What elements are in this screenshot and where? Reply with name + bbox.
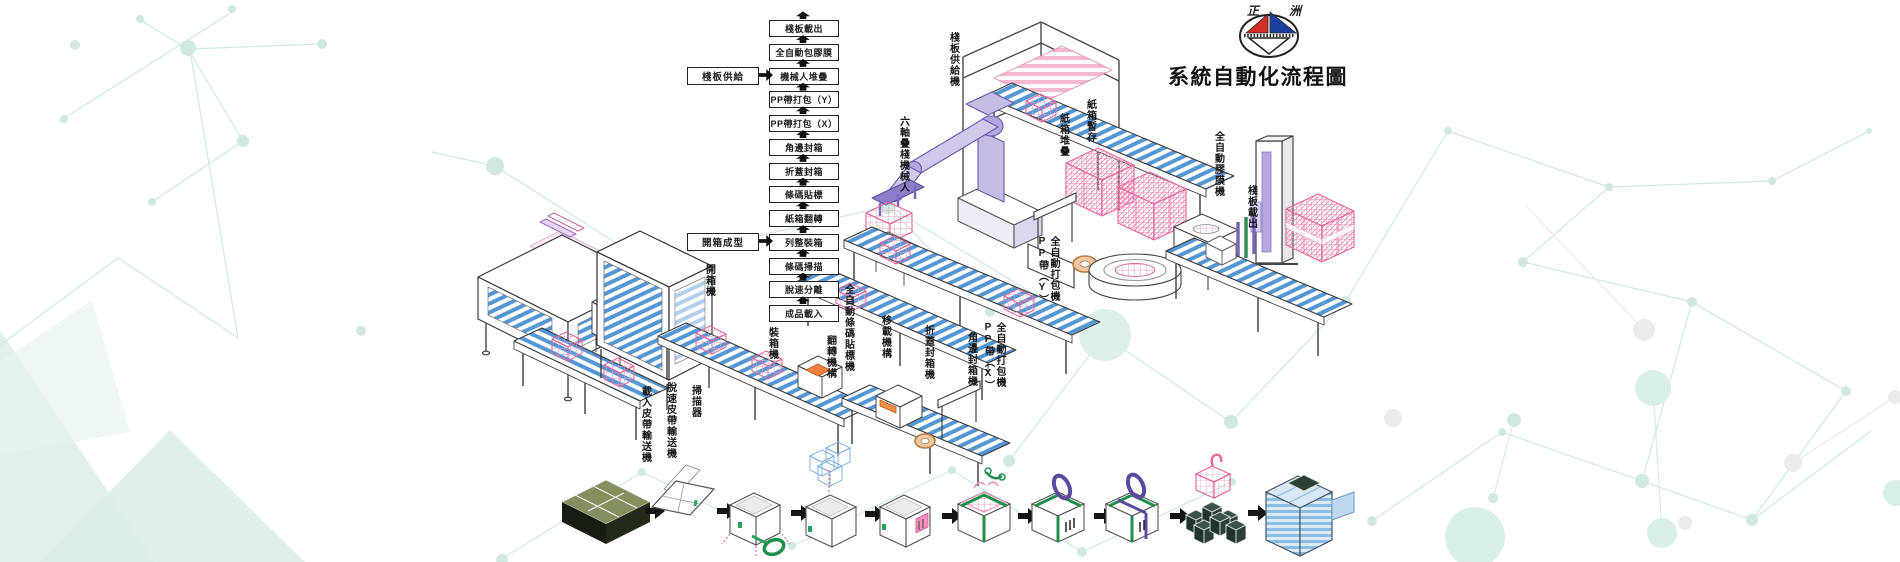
carton-erect-taping-icon xyxy=(722,493,790,557)
barcode-labeling-icon xyxy=(880,495,930,547)
stretch-wrapped-pallet-icon xyxy=(1266,475,1354,556)
automation-banner: 正 洲 系統自動化流程圖 棧板載出 全自動包膠膜 機械人堆疊 PP帶打包（Y） … xyxy=(0,0,1900,562)
process-flow-row xyxy=(562,442,1354,557)
flat-cardboard-stack-icon xyxy=(562,480,650,544)
pp-strapping-x-icon xyxy=(1032,473,1084,542)
scene-illustration xyxy=(0,0,1900,562)
folded-carton-blank-icon xyxy=(652,465,714,515)
product-loading-icon xyxy=(806,442,856,547)
pp-strapping-y-icon xyxy=(1106,472,1158,542)
rotary-wrap-table xyxy=(1089,254,1181,300)
palletizing-line-conveyors xyxy=(798,227,1100,400)
mid-conveyor xyxy=(658,323,872,456)
flow-arrow xyxy=(1248,505,1268,521)
